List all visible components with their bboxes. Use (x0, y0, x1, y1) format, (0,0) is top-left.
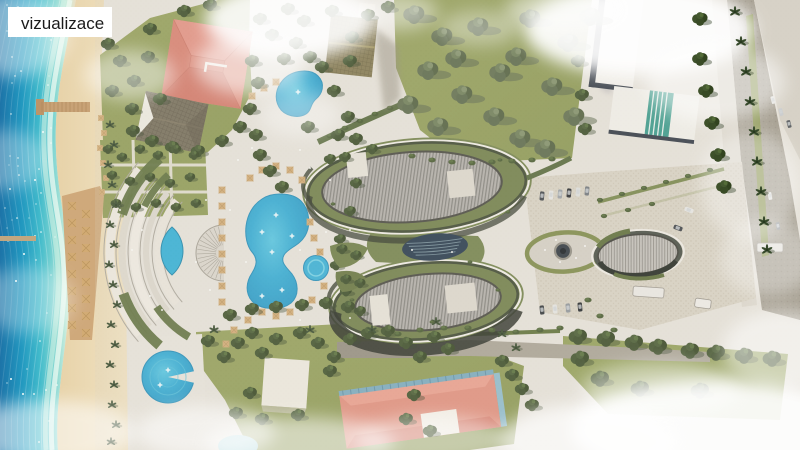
svg-text:vizualizace: vizualizace (21, 14, 104, 33)
